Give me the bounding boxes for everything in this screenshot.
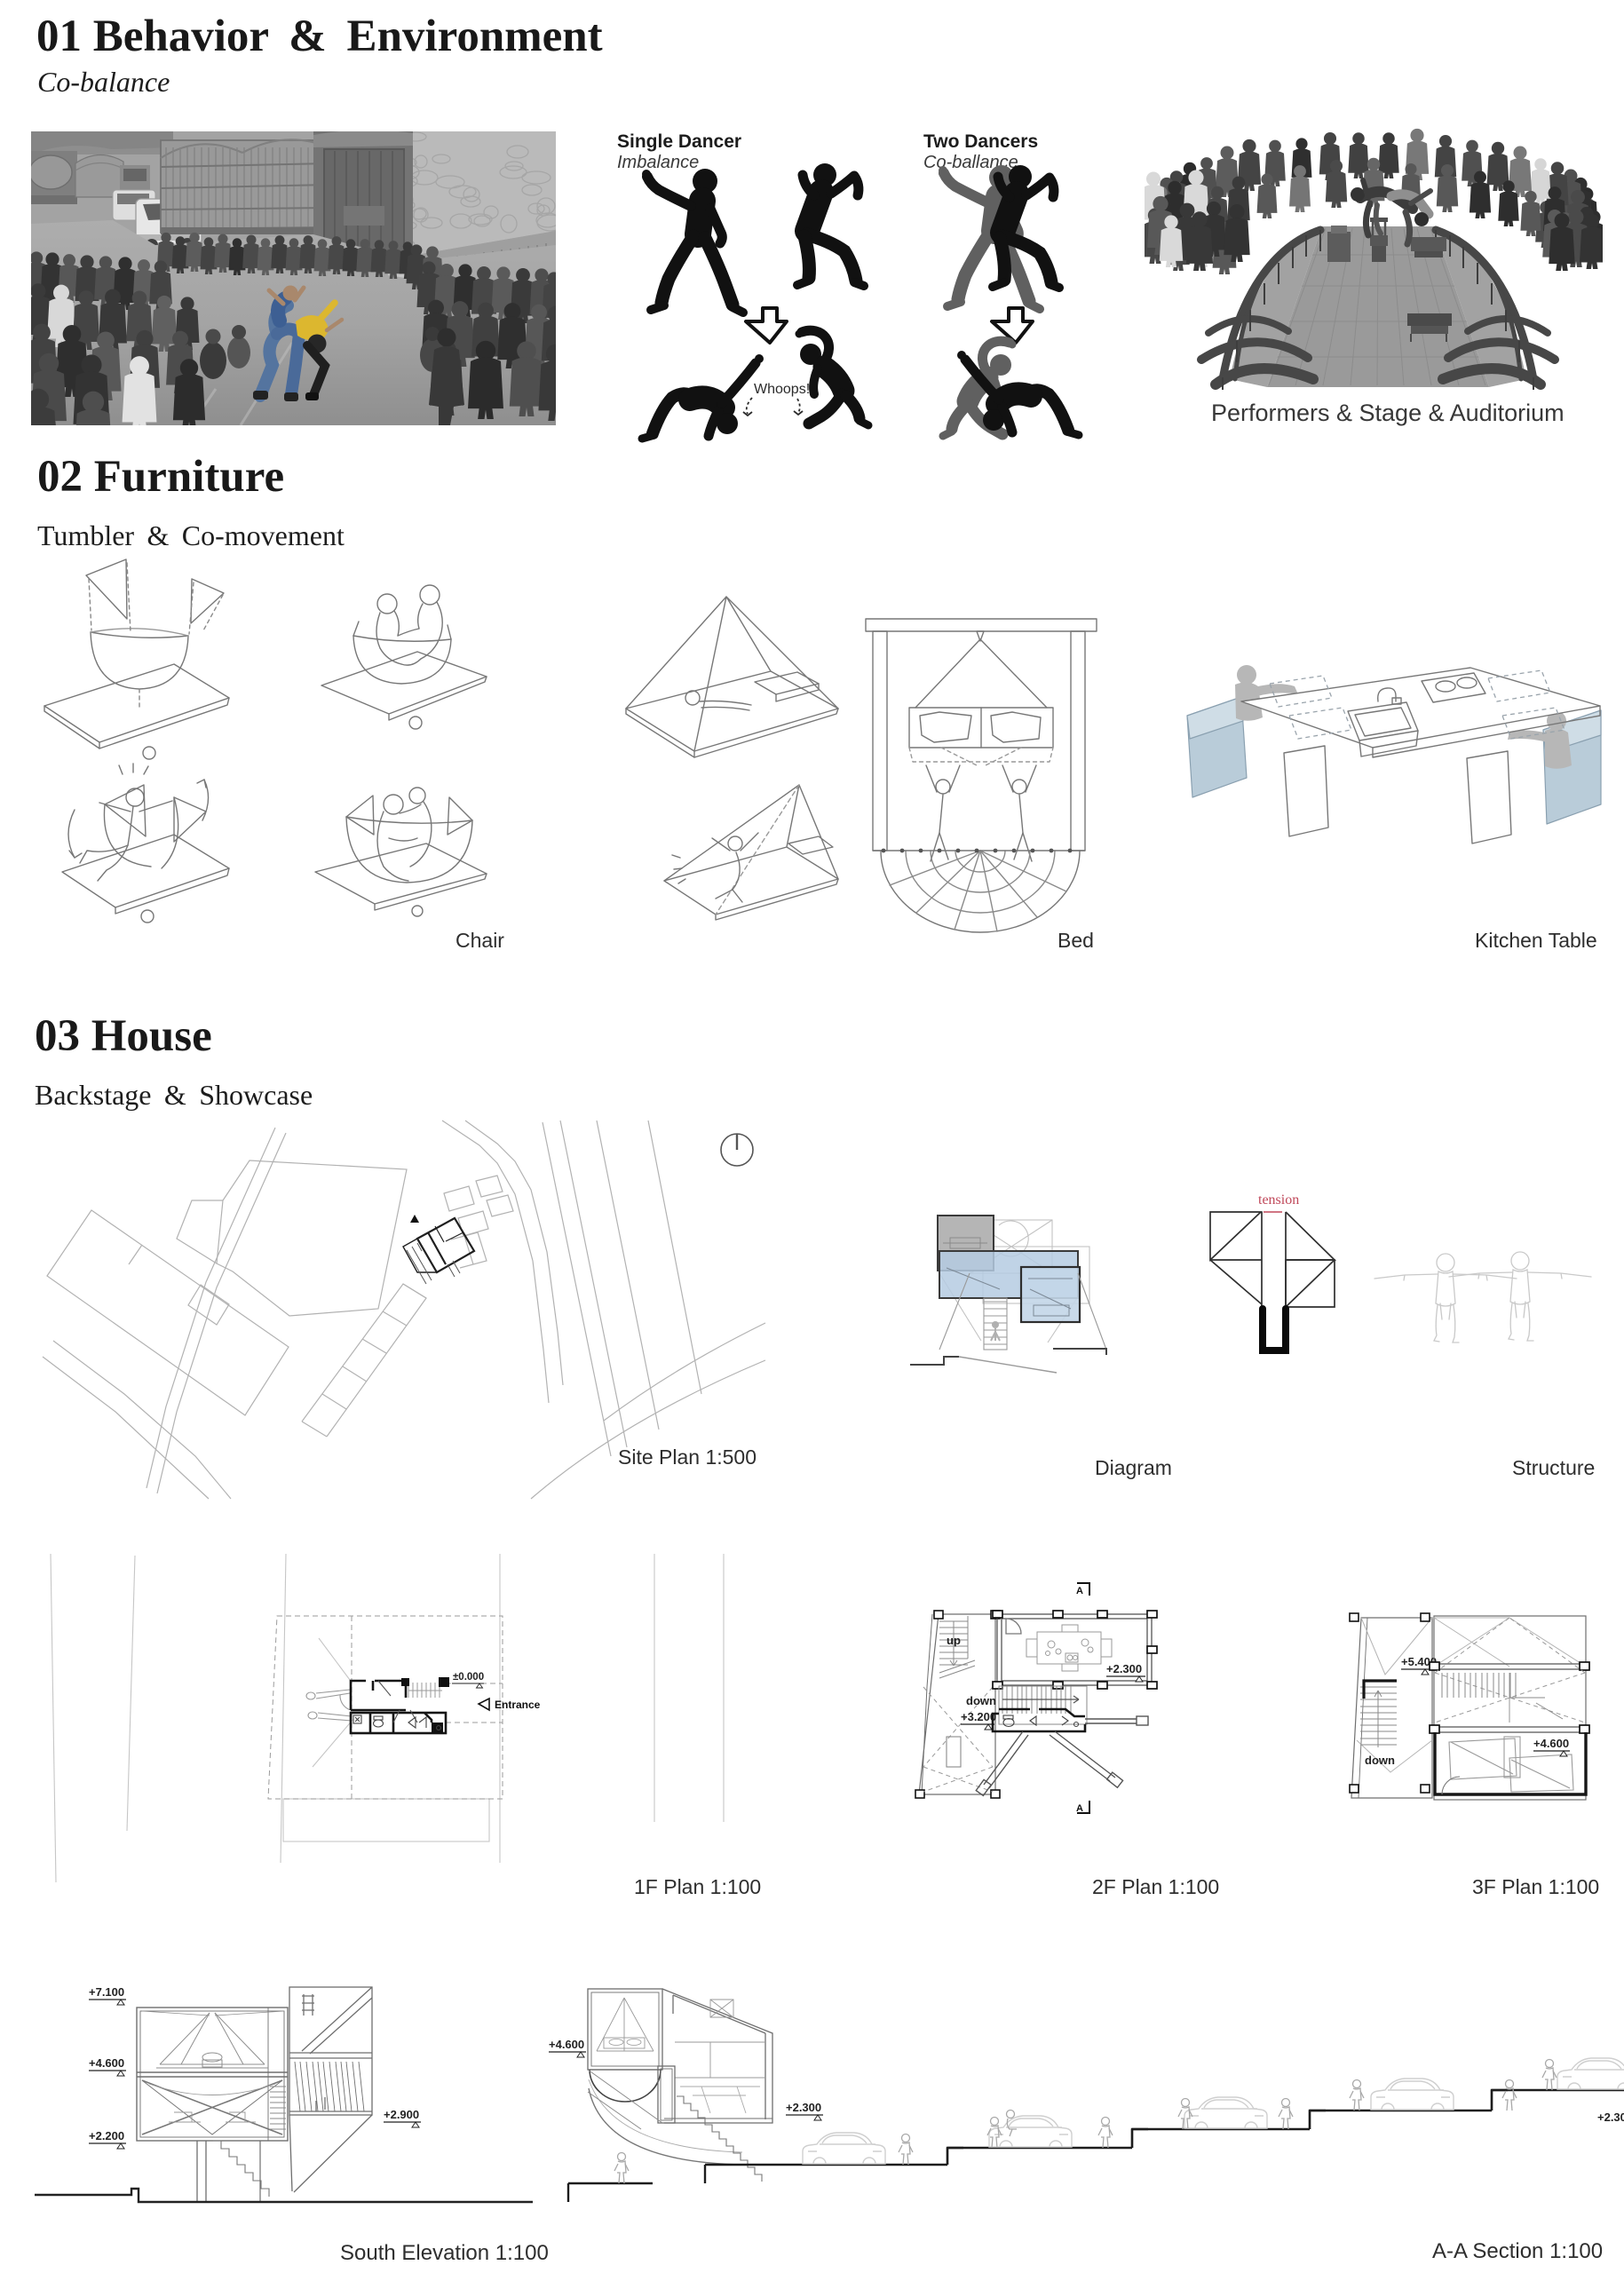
svg-text:up: up	[947, 1634, 961, 1647]
svg-text:+4.600: +4.600	[1533, 1737, 1569, 1750]
svg-text:+2.200: +2.200	[89, 2129, 124, 2142]
svg-text:+7.100: +7.100	[89, 1985, 124, 1999]
svg-text:+4.600: +4.600	[549, 2038, 584, 2051]
svg-text:+2.300: +2.300	[1106, 1662, 1142, 1675]
svg-text:tension: tension	[1258, 1192, 1299, 1208]
svg-text:+4.600: +4.600	[89, 2056, 124, 2070]
svg-text:+3.200: +3.200	[961, 1710, 996, 1723]
svg-text:down: down	[1365, 1754, 1395, 1767]
svg-text:down: down	[966, 1694, 996, 1707]
svg-text:+2.900: +2.900	[384, 2108, 419, 2121]
svg-text:+2.300: +2.300	[786, 2101, 821, 2114]
svg-text:Entrance: Entrance	[495, 1699, 541, 1711]
svg-text:A: A	[1076, 1586, 1083, 1596]
svg-text:Imbalance: Imbalance	[617, 153, 699, 172]
svg-text:A: A	[1076, 1803, 1083, 1814]
svg-text:Whoops!: Whoops!	[754, 382, 810, 397]
svg-text:±0.000: ±0.000	[453, 1672, 484, 1683]
svg-text:Two Dancers: Two Dancers	[923, 131, 1038, 152]
svg-text:Single Dancer: Single Dancer	[617, 131, 741, 152]
